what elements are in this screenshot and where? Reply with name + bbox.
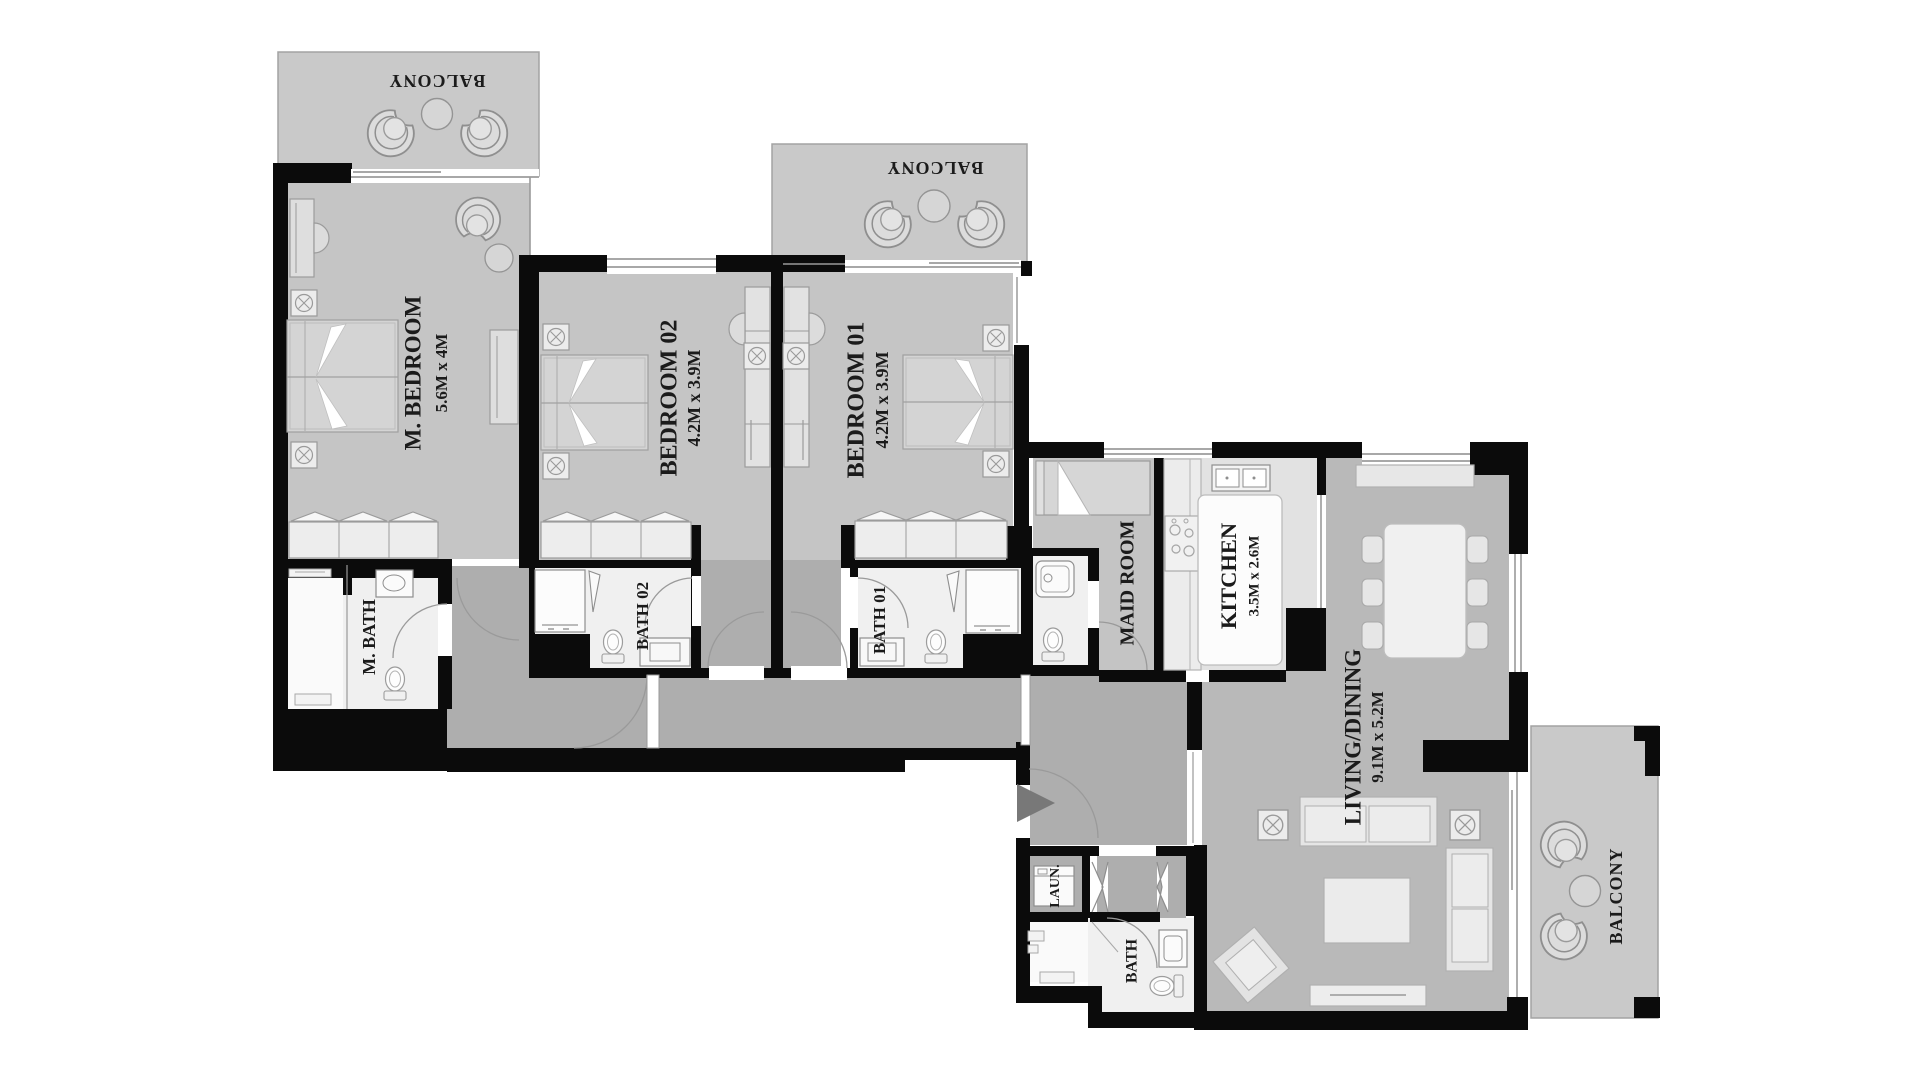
svg-text:M. BEDROOM: M. BEDROOM xyxy=(400,295,425,450)
svg-text:BEDROOM 02: BEDROOM 02 xyxy=(657,320,683,477)
svg-text:LIVING/DINING: LIVING/DINING xyxy=(1340,649,1365,825)
svg-text:BEDROOM 01: BEDROOM 01 xyxy=(844,322,870,479)
svg-text:4.2M x 3.9M: 4.2M x 3.9M xyxy=(684,350,704,447)
svg-text:BALCONY: BALCONY xyxy=(388,71,485,91)
svg-text:KITCHEN: KITCHEN xyxy=(1216,523,1241,629)
svg-text:3.5M x 2.6M: 3.5M x 2.6M xyxy=(1246,536,1262,617)
svg-text:BATH: BATH xyxy=(1124,938,1141,983)
svg-text:4.2M x 3.9M: 4.2M x 3.9M xyxy=(872,352,892,449)
svg-text:BALCONY: BALCONY xyxy=(1606,847,1626,944)
svg-text:5.6M x 4M: 5.6M x 4M xyxy=(432,334,451,413)
svg-text:BATH 01: BATH 01 xyxy=(870,586,889,654)
svg-text:BATH 02: BATH 02 xyxy=(633,582,652,650)
svg-text:M. BATH: M. BATH xyxy=(359,599,379,675)
svg-text:9.1M x 5.2M: 9.1M x 5.2M xyxy=(1368,691,1387,783)
svg-text:LAUN.: LAUN. xyxy=(1048,864,1063,907)
svg-text:MAID ROOM: MAID ROOM xyxy=(1117,520,1139,645)
svg-text:BALCONY: BALCONY xyxy=(886,158,983,178)
